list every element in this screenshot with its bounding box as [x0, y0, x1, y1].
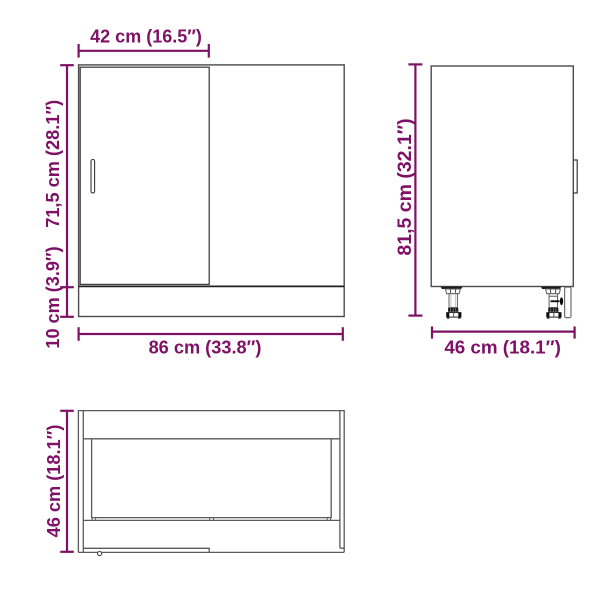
- svg-text:42 cm (16.5″): 42 cm (16.5″): [90, 26, 202, 46]
- svg-text:71,5 cm (28.1″): 71,5 cm (28.1″): [43, 100, 63, 228]
- svg-text:46 cm (18.1″): 46 cm (18.1″): [444, 337, 561, 358]
- svg-text:86 cm (33.8″): 86 cm (33.8″): [149, 338, 262, 358]
- svg-text:81,5 cm (32.1″): 81,5 cm (32.1″): [394, 118, 416, 255]
- svg-text:46 cm (18.1″): 46 cm (18.1″): [44, 425, 64, 538]
- svg-text:10 cm (3.9″): 10 cm (3.9″): [43, 246, 63, 348]
